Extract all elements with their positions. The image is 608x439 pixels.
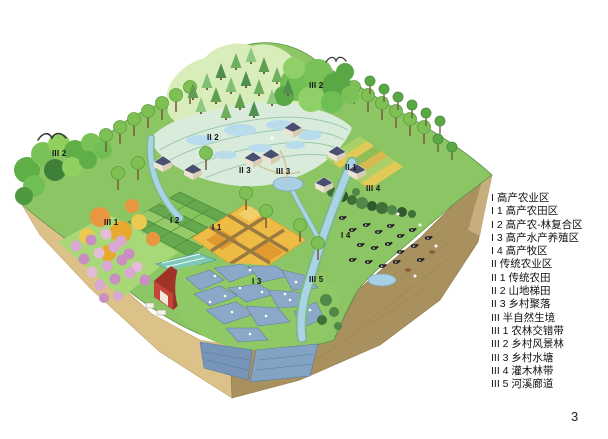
legend-item: I 2 高产农-林复合区	[491, 219, 607, 232]
legend-item: I 高产农业区	[491, 192, 607, 205]
map-zone-label: I 3	[252, 278, 262, 286]
legend-item: II 3 乡村聚落	[491, 298, 607, 311]
map-zone-label: III 3	[276, 168, 290, 176]
legend-item: III 5 河溪廊道	[491, 378, 607, 391]
map-zone-label: III 5	[309, 276, 323, 284]
legend: I 高产农业区 I 1 高产农田区 I 2 高产农-林复合区 I 3 高产水产养…	[491, 192, 607, 391]
map-zone-label: I 4	[341, 232, 351, 240]
legend-item: I 1 高产农田区	[491, 205, 607, 218]
landscape-illustration	[0, 0, 500, 439]
map-zone-label: II 1	[345, 164, 357, 172]
legend-item: III 半自然生境	[491, 312, 607, 325]
map-zone-label: III 2	[309, 82, 323, 90]
legend-item: III 1 农林交错带	[491, 325, 607, 338]
map-zone-label: I 1	[212, 224, 222, 232]
legend-item: I 4 高产牧区	[491, 245, 607, 258]
map-zone-label: III 4	[366, 185, 380, 193]
legend-item: III 3 乡村水塘	[491, 352, 607, 365]
legend-item: III 2 乡村风景林	[491, 338, 607, 351]
map-zone-label: III 2	[52, 150, 66, 158]
map-zone-label: II 2	[207, 134, 219, 142]
legend-item: II 2 山地梯田	[491, 285, 607, 298]
figure-page: III 2 II 2 III 2 II 3 III 3 II 1 III 4 I…	[0, 0, 608, 439]
map-zone-label: III 1	[104, 219, 118, 227]
legend-item: II 1 传统农田	[491, 272, 607, 285]
map-zone-label: II 3	[239, 167, 251, 175]
map-zone-label: I 2	[170, 217, 180, 225]
page-number: 3	[571, 409, 578, 424]
legend-item: I 3 高产水产养殖区	[491, 232, 607, 245]
legend-item: III 4 灌木林带	[491, 365, 607, 378]
legend-item: II 传统农业区	[491, 258, 607, 271]
